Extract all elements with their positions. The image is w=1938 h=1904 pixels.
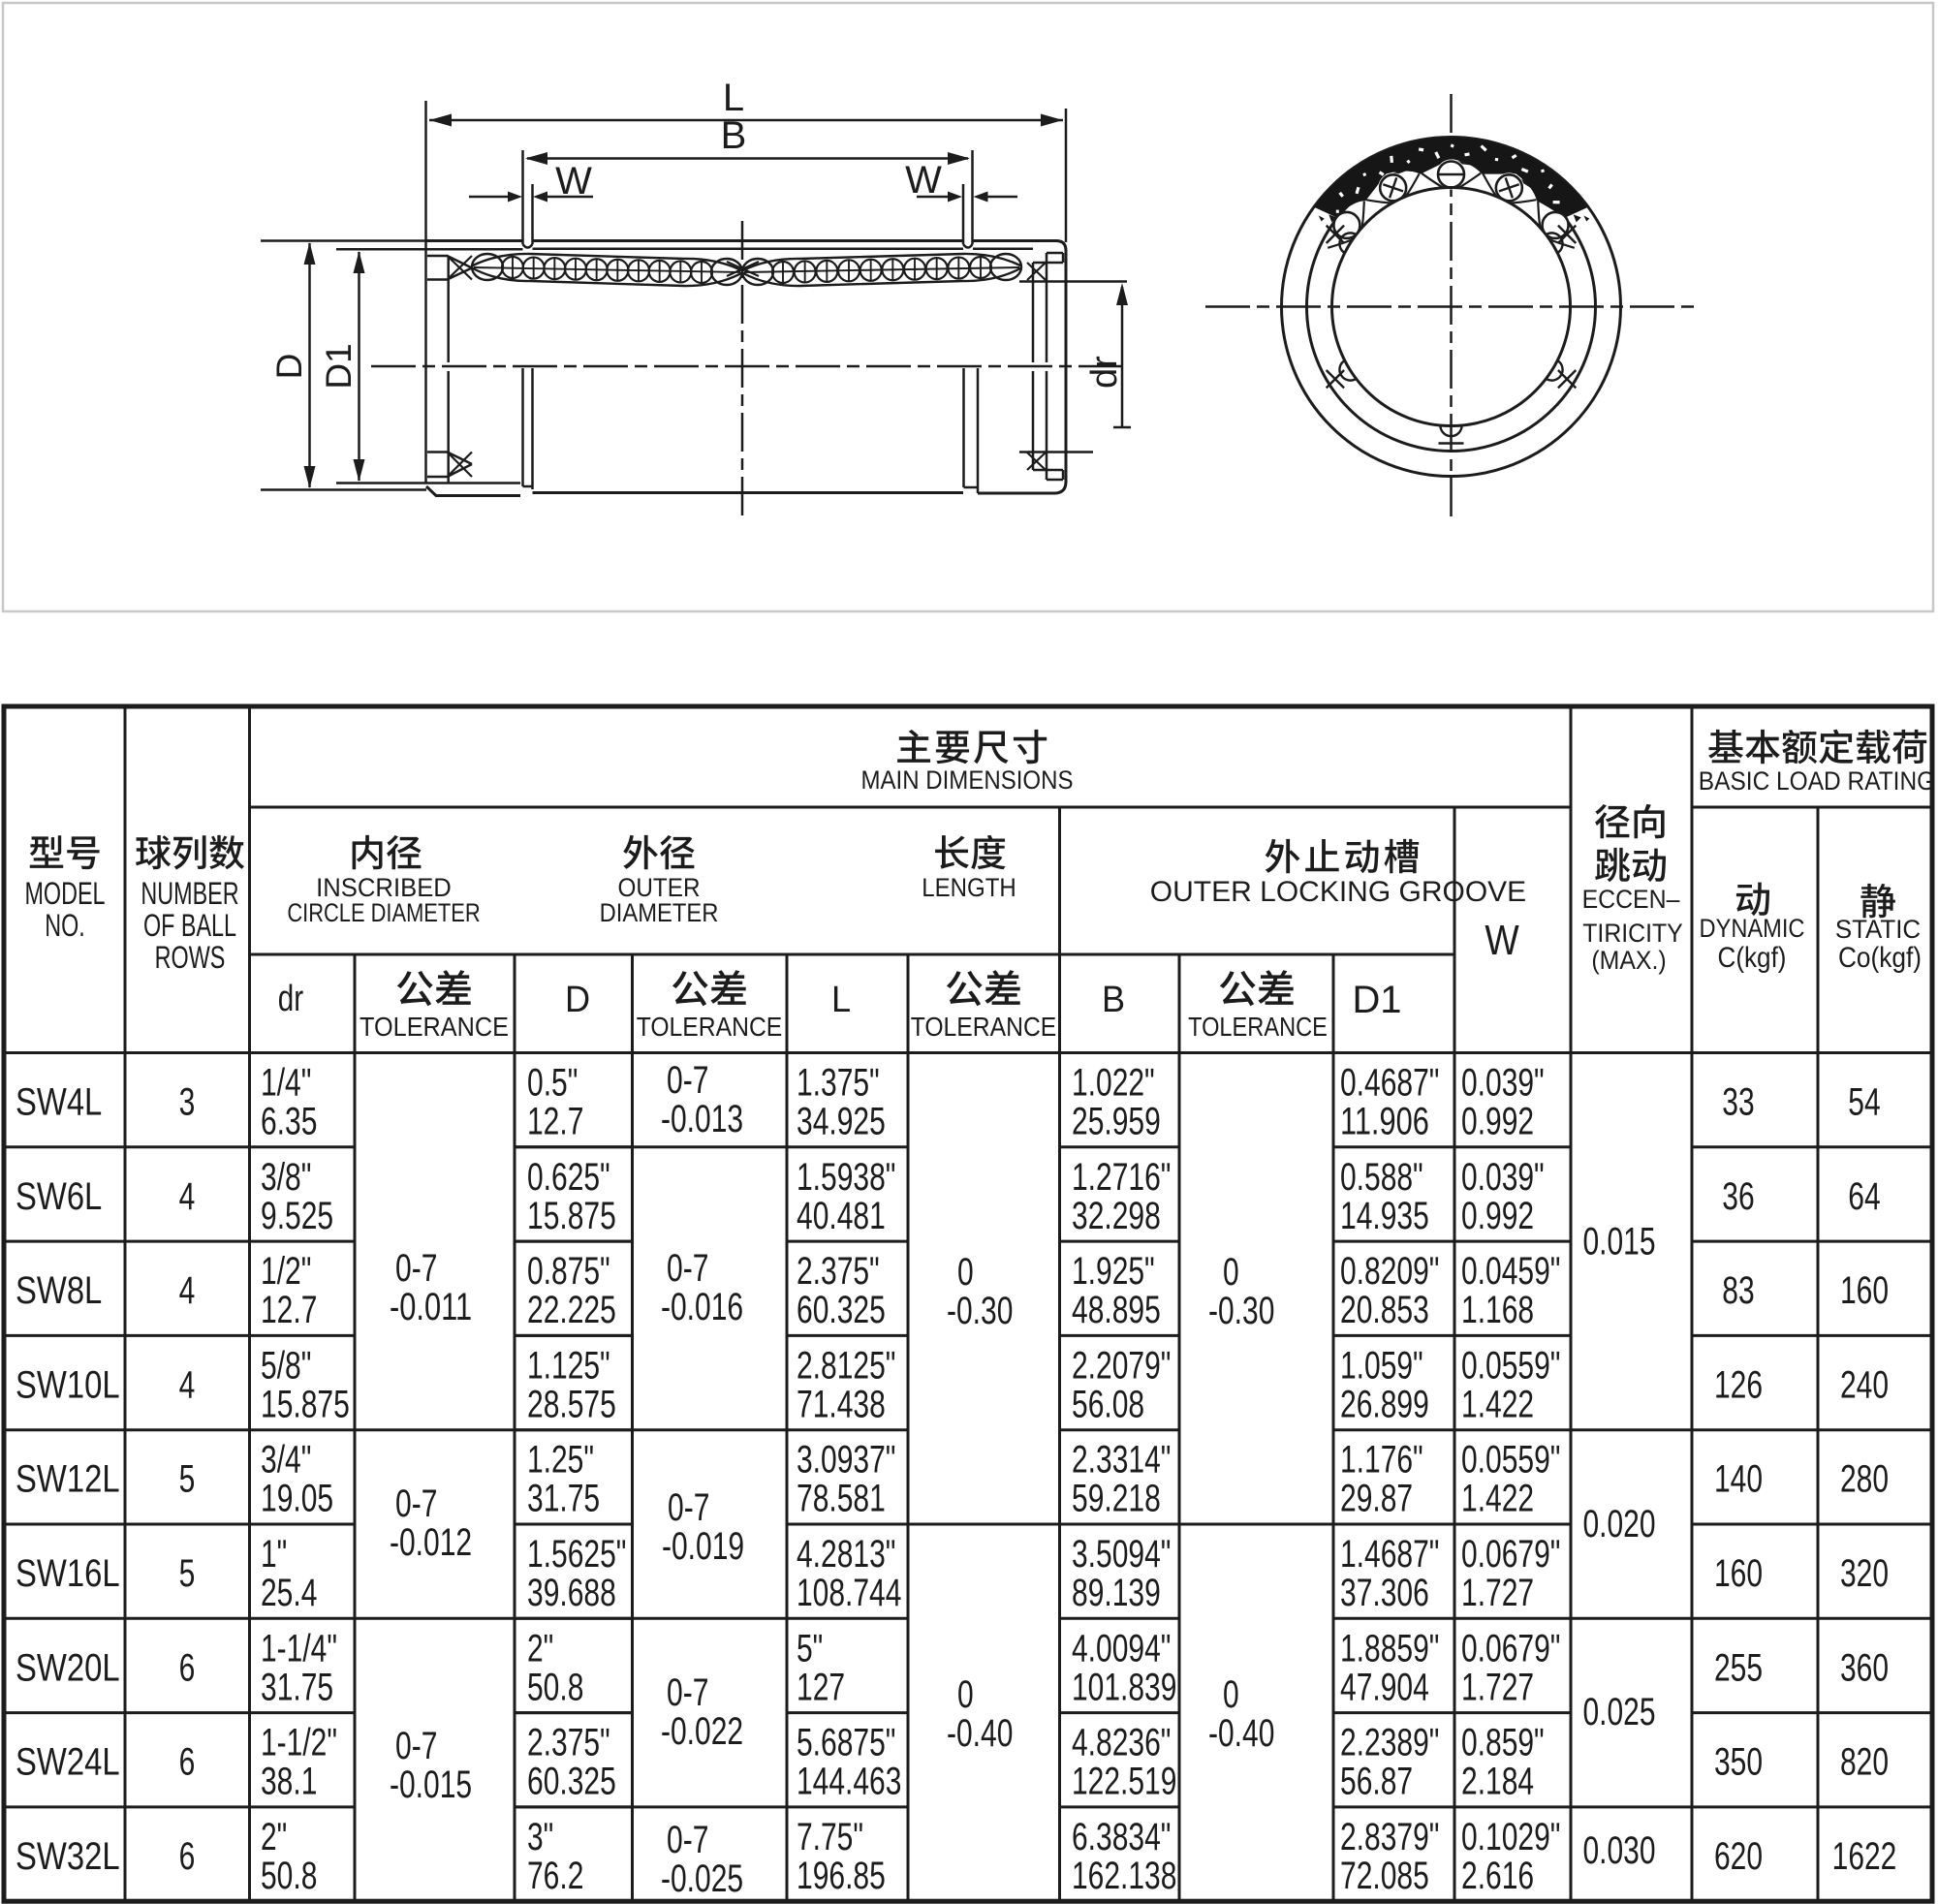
svg-text:26.899: 26.899 xyxy=(1340,1383,1429,1425)
svg-text:0-7: 0-7 xyxy=(667,1247,708,1290)
svg-text:L: L xyxy=(831,980,851,1020)
svg-text:37.306: 37.306 xyxy=(1340,1572,1429,1614)
svg-text:1622: 1622 xyxy=(1832,1835,1897,1878)
svg-text:5: 5 xyxy=(179,1458,196,1501)
svg-text:1.8859": 1.8859" xyxy=(1340,1627,1439,1670)
svg-text:-0.015: -0.015 xyxy=(390,1764,472,1806)
svg-text:32.298: 32.298 xyxy=(1072,1195,1161,1237)
svg-text:1-1/2": 1-1/2" xyxy=(261,1722,337,1764)
svg-text:0.875": 0.875" xyxy=(527,1250,610,1293)
svg-text:38.1: 38.1 xyxy=(261,1761,317,1803)
svg-text:0.859": 0.859" xyxy=(1461,1722,1545,1764)
svg-text:280: 280 xyxy=(1840,1458,1889,1501)
svg-text:47.904: 47.904 xyxy=(1340,1666,1429,1708)
svg-text:0.4687": 0.4687" xyxy=(1340,1062,1439,1105)
svg-text:dr: dr xyxy=(1084,356,1125,389)
svg-text:255: 255 xyxy=(1714,1646,1763,1689)
svg-text:240: 240 xyxy=(1840,1363,1889,1406)
svg-text:0-7: 0-7 xyxy=(395,1483,437,1525)
svg-text:3.5094": 3.5094" xyxy=(1072,1533,1171,1576)
svg-text:1.5625": 1.5625" xyxy=(527,1533,626,1576)
svg-text:83: 83 xyxy=(1722,1269,1754,1312)
svg-text:350: 350 xyxy=(1714,1741,1763,1784)
svg-text:126: 126 xyxy=(1714,1363,1763,1406)
svg-text:1": 1" xyxy=(261,1533,287,1576)
svg-text:CIRCLE DIAMETER: CIRCLE DIAMETER xyxy=(287,898,480,927)
svg-text:0.0679": 0.0679" xyxy=(1461,1533,1560,1576)
svg-text:2": 2" xyxy=(261,1816,287,1858)
svg-text:0.8209": 0.8209" xyxy=(1340,1250,1439,1293)
svg-text:1.375": 1.375" xyxy=(797,1062,880,1105)
svg-text:4.8236": 4.8236" xyxy=(1072,1722,1171,1764)
svg-text:1.125": 1.125" xyxy=(527,1344,610,1387)
svg-text:0: 0 xyxy=(1223,1251,1239,1294)
svg-text:3": 3" xyxy=(527,1816,553,1858)
svg-text:-0.022: -0.022 xyxy=(661,1710,743,1753)
svg-text:OUTER LOCKING GROOVE: OUTER LOCKING GROOVE xyxy=(1150,876,1526,908)
svg-text:D: D xyxy=(269,354,309,380)
svg-text:50.8: 50.8 xyxy=(527,1666,583,1708)
svg-text:54: 54 xyxy=(1848,1081,1880,1124)
svg-text:31.75: 31.75 xyxy=(261,1666,333,1708)
svg-text:5: 5 xyxy=(179,1552,196,1595)
svg-text:0: 0 xyxy=(1223,1673,1239,1716)
svg-text:1.2716": 1.2716" xyxy=(1072,1156,1171,1199)
svg-text:2.2389": 2.2389" xyxy=(1340,1722,1439,1764)
svg-text:39.688: 39.688 xyxy=(527,1572,616,1614)
svg-text:0.025: 0.025 xyxy=(1582,1691,1655,1733)
svg-text:4: 4 xyxy=(179,1269,196,1312)
svg-text:Co(kgf): Co(kgf) xyxy=(1838,942,1922,974)
svg-text:-0.016: -0.016 xyxy=(661,1286,743,1328)
svg-text:140: 140 xyxy=(1714,1458,1763,1501)
svg-text:MODEL: MODEL xyxy=(24,876,105,911)
svg-text:22.225: 22.225 xyxy=(527,1289,616,1331)
svg-text:2.616: 2.616 xyxy=(1461,1855,1534,1897)
svg-text:5": 5" xyxy=(797,1627,823,1670)
svg-text:29.87: 29.87 xyxy=(1340,1478,1413,1520)
svg-text:5.6875": 5.6875" xyxy=(797,1722,895,1764)
svg-text:0.020: 0.020 xyxy=(1582,1503,1655,1545)
svg-text:(MAX.): (MAX.) xyxy=(1591,946,1666,975)
svg-text:0-7: 0-7 xyxy=(395,1725,437,1767)
svg-text:SW6L: SW6L xyxy=(16,1175,102,1218)
svg-text:0.0559": 0.0559" xyxy=(1461,1439,1560,1482)
svg-text:BASIC LOAD RATING: BASIC LOAD RATING xyxy=(1699,766,1935,796)
svg-text:0.039": 0.039" xyxy=(1461,1062,1545,1105)
svg-text:SW32L: SW32L xyxy=(16,1835,120,1878)
svg-text:60.325: 60.325 xyxy=(797,1289,886,1331)
svg-text:MAIN DIMENSIONS: MAIN DIMENSIONS xyxy=(861,765,1074,795)
svg-text:0.992: 0.992 xyxy=(1461,1101,1534,1143)
svg-text:144.463: 144.463 xyxy=(797,1761,901,1803)
svg-text:0.588": 0.588" xyxy=(1340,1156,1423,1199)
svg-text:0.039": 0.039" xyxy=(1461,1156,1545,1199)
svg-text:19.05: 19.05 xyxy=(261,1478,333,1520)
svg-text:4.2813": 4.2813" xyxy=(797,1533,895,1576)
svg-text:78.581: 78.581 xyxy=(797,1478,886,1520)
svg-text:0.0459": 0.0459" xyxy=(1461,1250,1560,1293)
svg-text:620: 620 xyxy=(1714,1835,1763,1878)
svg-text:0.992: 0.992 xyxy=(1461,1195,1534,1237)
svg-text:ROWS: ROWS xyxy=(155,940,226,975)
svg-text:56.87: 56.87 xyxy=(1340,1761,1413,1803)
svg-text:0-7: 0-7 xyxy=(667,1671,708,1714)
svg-text:0.5": 0.5" xyxy=(527,1062,578,1105)
svg-text:dr: dr xyxy=(278,979,304,1019)
svg-text:0-7: 0-7 xyxy=(668,1486,709,1529)
svg-text:TOLERANCE: TOLERANCE xyxy=(1188,1012,1328,1042)
svg-text:50.8: 50.8 xyxy=(261,1855,317,1897)
svg-text:14.935: 14.935 xyxy=(1340,1195,1429,1237)
svg-text:STATIC: STATIC xyxy=(1835,915,1921,944)
svg-text:2.375": 2.375" xyxy=(797,1250,880,1293)
svg-text:36: 36 xyxy=(1722,1175,1754,1218)
svg-text:196.85: 196.85 xyxy=(797,1855,886,1897)
svg-text:6: 6 xyxy=(179,1835,196,1878)
svg-text:820: 820 xyxy=(1840,1741,1889,1784)
svg-text:1/2": 1/2" xyxy=(261,1250,311,1293)
svg-text:0.1029": 0.1029" xyxy=(1461,1816,1560,1858)
svg-text:360: 360 xyxy=(1840,1646,1889,1689)
svg-text:TOLERANCE: TOLERANCE xyxy=(359,1012,509,1042)
svg-text:59.218: 59.218 xyxy=(1072,1478,1161,1520)
svg-text:20.853: 20.853 xyxy=(1340,1289,1429,1331)
svg-text:6.35: 6.35 xyxy=(261,1101,317,1143)
svg-text:L: L xyxy=(723,77,744,119)
svg-text:NUMBER: NUMBER xyxy=(141,876,238,911)
svg-text:C(kgf): C(kgf) xyxy=(1718,942,1787,974)
svg-text:56.08: 56.08 xyxy=(1072,1383,1144,1425)
svg-text:1.422: 1.422 xyxy=(1461,1478,1534,1520)
svg-text:1.727: 1.727 xyxy=(1461,1666,1534,1708)
svg-text:TOLERANCE: TOLERANCE xyxy=(637,1012,783,1042)
svg-text:0.030: 0.030 xyxy=(1582,1829,1655,1872)
svg-text:0-7: 0-7 xyxy=(395,1247,437,1290)
svg-text:15.875: 15.875 xyxy=(527,1195,616,1237)
svg-text:3: 3 xyxy=(179,1081,196,1124)
svg-text:7.75": 7.75" xyxy=(797,1816,863,1858)
svg-text:25.959: 25.959 xyxy=(1072,1101,1161,1143)
svg-text:2.2079": 2.2079" xyxy=(1072,1344,1171,1387)
svg-text:SW24L: SW24L xyxy=(16,1741,120,1784)
svg-text:2.3314": 2.3314" xyxy=(1072,1439,1171,1482)
svg-text:LENGTH: LENGTH xyxy=(922,873,1016,902)
svg-text:SW4L: SW4L xyxy=(16,1081,102,1124)
svg-text:6.3834": 6.3834" xyxy=(1072,1816,1171,1858)
svg-text:1.25": 1.25" xyxy=(527,1439,594,1482)
svg-text:OF BALL: OF BALL xyxy=(143,908,236,943)
svg-text:4: 4 xyxy=(179,1175,196,1218)
svg-text:1.059": 1.059" xyxy=(1340,1344,1423,1387)
svg-text:-0.012: -0.012 xyxy=(390,1521,472,1564)
svg-text:0-7: 0-7 xyxy=(667,1059,708,1102)
svg-text:40.481: 40.481 xyxy=(797,1195,886,1237)
svg-text:3/8": 3/8" xyxy=(261,1156,311,1199)
svg-text:0-7: 0-7 xyxy=(667,1819,708,1861)
svg-text:0: 0 xyxy=(957,1251,974,1294)
svg-text:1.168: 1.168 xyxy=(1461,1289,1534,1331)
svg-text:SW10L: SW10L xyxy=(16,1363,120,1406)
svg-text:6: 6 xyxy=(179,1646,196,1689)
svg-text:48.895: 48.895 xyxy=(1072,1289,1161,1331)
svg-text:2": 2" xyxy=(527,1627,553,1670)
svg-text:-0.011: -0.011 xyxy=(390,1286,472,1328)
svg-text:B: B xyxy=(1102,980,1125,1020)
svg-text:25.4: 25.4 xyxy=(261,1572,317,1614)
svg-text:B: B xyxy=(721,114,747,157)
svg-text:D1: D1 xyxy=(1352,979,1401,1021)
svg-text:12.7: 12.7 xyxy=(527,1101,583,1143)
svg-text:3.0937": 3.0937" xyxy=(797,1439,895,1482)
svg-text:W: W xyxy=(1485,917,1519,964)
svg-text:DIAMETER: DIAMETER xyxy=(600,898,719,927)
svg-text:1.727: 1.727 xyxy=(1461,1572,1534,1614)
svg-text:320: 320 xyxy=(1840,1552,1889,1595)
svg-text:SW8L: SW8L xyxy=(16,1269,102,1312)
svg-text:NO.: NO. xyxy=(45,908,85,943)
svg-text:6: 6 xyxy=(179,1741,196,1784)
svg-text:-0.40: -0.40 xyxy=(947,1712,1013,1755)
svg-text:0: 0 xyxy=(957,1673,974,1716)
svg-text:TIRICITY: TIRICITY xyxy=(1582,919,1683,948)
svg-text:1/4": 1/4" xyxy=(261,1062,311,1105)
svg-text:1.5938": 1.5938" xyxy=(797,1156,895,1199)
svg-text:SW16L: SW16L xyxy=(16,1552,120,1595)
svg-text:DYNAMIC: DYNAMIC xyxy=(1700,914,1805,943)
svg-text:60.325: 60.325 xyxy=(527,1761,616,1803)
svg-text:-0.025: -0.025 xyxy=(661,1857,743,1900)
svg-text:64: 64 xyxy=(1848,1175,1880,1218)
svg-text:101.839: 101.839 xyxy=(1072,1666,1176,1708)
svg-text:0.0679": 0.0679" xyxy=(1461,1627,1560,1670)
svg-text:-0.019: -0.019 xyxy=(662,1525,744,1568)
svg-text:76.2: 76.2 xyxy=(527,1855,583,1897)
svg-text:D: D xyxy=(565,980,590,1020)
svg-text:108.744: 108.744 xyxy=(797,1572,901,1614)
svg-text:0.0559": 0.0559" xyxy=(1461,1344,1560,1387)
svg-text:D1: D1 xyxy=(319,343,359,389)
svg-text:0.625": 0.625" xyxy=(527,1156,610,1199)
svg-text:4: 4 xyxy=(179,1363,196,1406)
svg-text:33: 33 xyxy=(1722,1081,1754,1124)
svg-text:9.525: 9.525 xyxy=(261,1195,333,1237)
svg-text:15.875: 15.875 xyxy=(261,1383,350,1425)
svg-text:28.575: 28.575 xyxy=(527,1383,616,1425)
svg-text:31.75: 31.75 xyxy=(527,1478,600,1520)
svg-text:71.438: 71.438 xyxy=(797,1383,886,1425)
svg-text:1.176": 1.176" xyxy=(1340,1439,1423,1482)
svg-text:1.022": 1.022" xyxy=(1072,1062,1155,1105)
svg-text:1-1/4": 1-1/4" xyxy=(261,1627,337,1670)
svg-text:TOLERANCE: TOLERANCE xyxy=(911,1012,1057,1042)
svg-text:4.0094": 4.0094" xyxy=(1072,1627,1171,1670)
svg-text:34.925: 34.925 xyxy=(797,1101,886,1143)
svg-text:2.184: 2.184 xyxy=(1461,1761,1534,1803)
svg-text:2.8379": 2.8379" xyxy=(1340,1816,1439,1858)
svg-text:162.138: 162.138 xyxy=(1072,1855,1176,1897)
svg-text:160: 160 xyxy=(1840,1269,1889,1312)
svg-text:122.519: 122.519 xyxy=(1072,1761,1176,1803)
svg-text:1.4687": 1.4687" xyxy=(1340,1533,1439,1576)
svg-text:1.422: 1.422 xyxy=(1461,1383,1534,1425)
svg-text:72.085: 72.085 xyxy=(1340,1855,1429,1897)
svg-text:127: 127 xyxy=(797,1666,845,1708)
svg-text:12.7: 12.7 xyxy=(261,1289,317,1331)
svg-text:-0.30: -0.30 xyxy=(947,1290,1013,1332)
svg-text:1.925": 1.925" xyxy=(1072,1250,1155,1293)
svg-text:W: W xyxy=(905,159,942,202)
svg-text:2.375": 2.375" xyxy=(527,1722,610,1764)
svg-text:0.015: 0.015 xyxy=(1582,1221,1655,1264)
svg-text:-0.30: -0.30 xyxy=(1208,1290,1274,1332)
svg-text:SW12L: SW12L xyxy=(16,1458,120,1501)
svg-text:2.8125": 2.8125" xyxy=(797,1344,895,1387)
svg-text:-0.013: -0.013 xyxy=(661,1098,743,1140)
svg-text:ECCEN–: ECCEN– xyxy=(1582,885,1680,914)
svg-text:-0.40: -0.40 xyxy=(1208,1712,1274,1755)
svg-text:11.906: 11.906 xyxy=(1340,1101,1429,1143)
svg-text:5/8": 5/8" xyxy=(261,1344,311,1387)
svg-text:SW20L: SW20L xyxy=(16,1646,120,1689)
svg-text:160: 160 xyxy=(1714,1552,1763,1595)
svg-text:89.139: 89.139 xyxy=(1072,1572,1161,1614)
svg-text:3/4": 3/4" xyxy=(261,1439,311,1482)
